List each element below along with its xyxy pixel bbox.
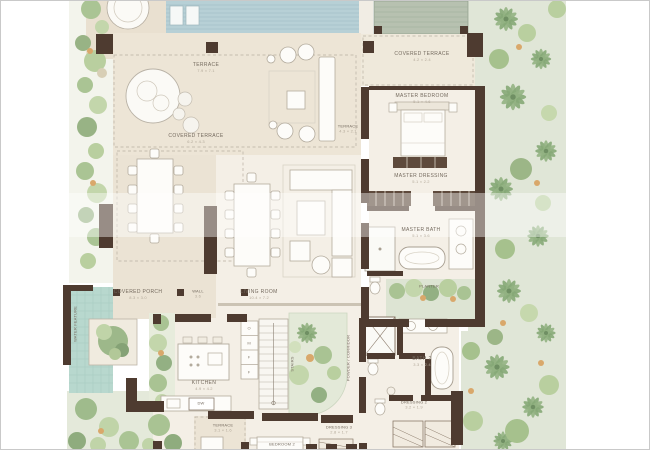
room-label-terrace-lounge: TERRACE4.3 × 2.1 — [338, 124, 359, 133]
room-label-dressing-2: DRESSING 23.2 × 1.9 — [401, 400, 427, 409]
room-label-master-bath: MASTER BATH5.1 × 3.6 — [401, 228, 440, 238]
room-label-master-bedroom: MASTER BEDROOM5.1 × 4.6 — [396, 94, 449, 104]
room-label-planter: PLANTER — [419, 285, 439, 290]
bedroom2-furniture — [250, 437, 353, 450]
kitchen-unit-letter-oven: O — [247, 326, 250, 331]
watermark-band — [61, 193, 566, 237]
room-label-master-dressing: MASTER DRESSING5.1 × 2.2 — [394, 174, 448, 184]
floor-plan-page: TERRACE7.9 × 7.1 COVERED TERRACE6.2 × 4.… — [0, 0, 650, 450]
room-label-living-room: LIVING ROOM10.4 × 7.2 — [240, 290, 277, 300]
room-label-terrace-bottom: TERRACE3.1 × 1.6 — [213, 423, 234, 432]
room-label-dressing-3: DRESSING 32.8 × 1.7 — [326, 425, 352, 434]
room-label-water-feature: WATER FEATURE — [74, 306, 79, 342]
room-label-terrace-upper: TERRACE7.9 × 7.1 — [193, 63, 219, 73]
covered-terrace-roof — [374, 1, 468, 34]
living-glazing-line — [218, 303, 361, 306]
kitchen-unit-letter-microwave: M — [247, 341, 250, 346]
room-label-stairs: STAIRS — [291, 356, 296, 371]
bottom-terrace-furniture — [201, 437, 223, 450]
room-label-covered-terrace-left: COVERED TERRACE6.2 × 4.3 — [168, 134, 223, 144]
room-label-covered-porch: COVERED PORCH8.3 × 3.0 — [114, 290, 163, 300]
kitchen-planter-strip — [149, 313, 175, 409]
room-label-bedroom-2: BEDROOM 2 — [269, 443, 295, 448]
room-label-dw: DW — [197, 402, 204, 407]
porch-tree-planter — [89, 319, 137, 365]
room-label-powder-corridor: POWDER / CORRIDOR — [347, 335, 352, 382]
kitchen-unit-letter-freezer: F — [248, 370, 250, 375]
room-label-kitchen: KITCHEN4.9 × 4.2 — [192, 381, 216, 391]
kitchen-unit-letter-fridge: F — [248, 355, 250, 360]
room-label-bath-2: BATH 23.3 × 2.4 — [412, 357, 431, 367]
staircase — [259, 319, 288, 409]
room-label-covered-terrace-top: COVERED TERRACE4.2 × 2.4 — [394, 52, 449, 62]
room-label-wall: WALL3.6 — [192, 289, 204, 298]
courtyard-garden — [289, 313, 347, 415]
